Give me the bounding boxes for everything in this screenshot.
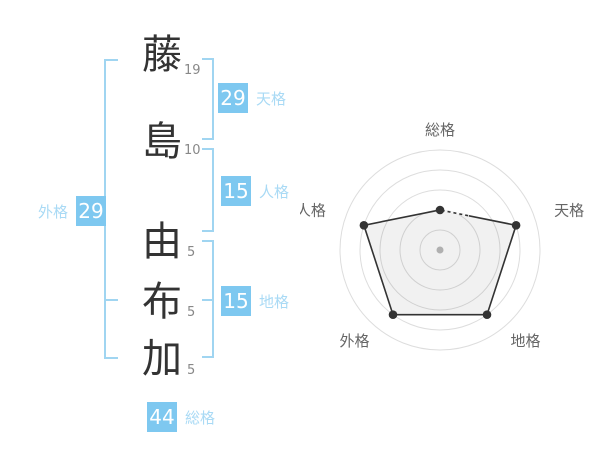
- jinkaku-label: 人格: [259, 181, 289, 202]
- soukaku-value: 44: [147, 402, 177, 432]
- name-character-2: 島: [140, 121, 184, 163]
- tenkaku-badge: 29 天格: [218, 83, 286, 113]
- radar-polygon: [364, 210, 516, 315]
- chikaku-bracket-mid-tick: [202, 299, 214, 301]
- jinkaku-badge: 15 人格: [221, 176, 289, 206]
- chikaku-value: 15: [221, 286, 251, 316]
- chikaku-label: 地格: [259, 291, 289, 312]
- radar-axis-label: 天格: [554, 202, 584, 220]
- radar-axis-label: 外格: [339, 332, 369, 350]
- jinkaku-value: 15: [221, 176, 251, 206]
- radar-point: [512, 221, 521, 230]
- radar-axis-label: 総格: [425, 121, 455, 139]
- stroke-count-1: 19: [184, 64, 201, 78]
- stroke-count-2: 10: [184, 144, 201, 158]
- name-analysis-panel: 藤 19 島 10 由 5 布 5 加 5 29 天格 15 人格 15 地格 …: [0, 0, 600, 470]
- soukaku-label: 総格: [185, 407, 215, 428]
- jinkaku-bracket: [202, 148, 214, 232]
- name-character-1: 藤: [140, 34, 184, 76]
- tenkaku-label: 天格: [256, 88, 286, 109]
- radar-point: [360, 221, 369, 230]
- name-character-5: 加: [140, 338, 184, 380]
- stroke-count-5: 5: [187, 364, 195, 378]
- tenkaku-value: 29: [218, 83, 248, 113]
- gaikaku-label: 外格: [38, 201, 68, 222]
- soukaku-badge: 44 総格: [147, 402, 215, 432]
- gaikaku-bracket-mid-tick: [104, 299, 118, 301]
- gaikaku-bracket: [104, 59, 118, 359]
- name-character-4: 布: [140, 281, 184, 323]
- name-character-3: 由: [140, 221, 184, 263]
- radar-axis-label: 地格: [511, 332, 541, 350]
- tenkaku-bracket: [202, 58, 214, 140]
- radar-point: [436, 206, 445, 215]
- stroke-count-4: 5: [187, 306, 195, 320]
- gaikaku-badge: 外格 29: [38, 196, 106, 226]
- radar-point: [483, 310, 492, 319]
- radar-chart: 総格天格地格外格人格: [300, 108, 600, 378]
- gaikaku-value: 29: [76, 196, 106, 226]
- chikaku-badge: 15 地格: [221, 286, 289, 316]
- radar-point: [389, 310, 398, 319]
- radar-axis-label: 人格: [300, 202, 326, 220]
- stroke-count-3: 5: [187, 246, 195, 260]
